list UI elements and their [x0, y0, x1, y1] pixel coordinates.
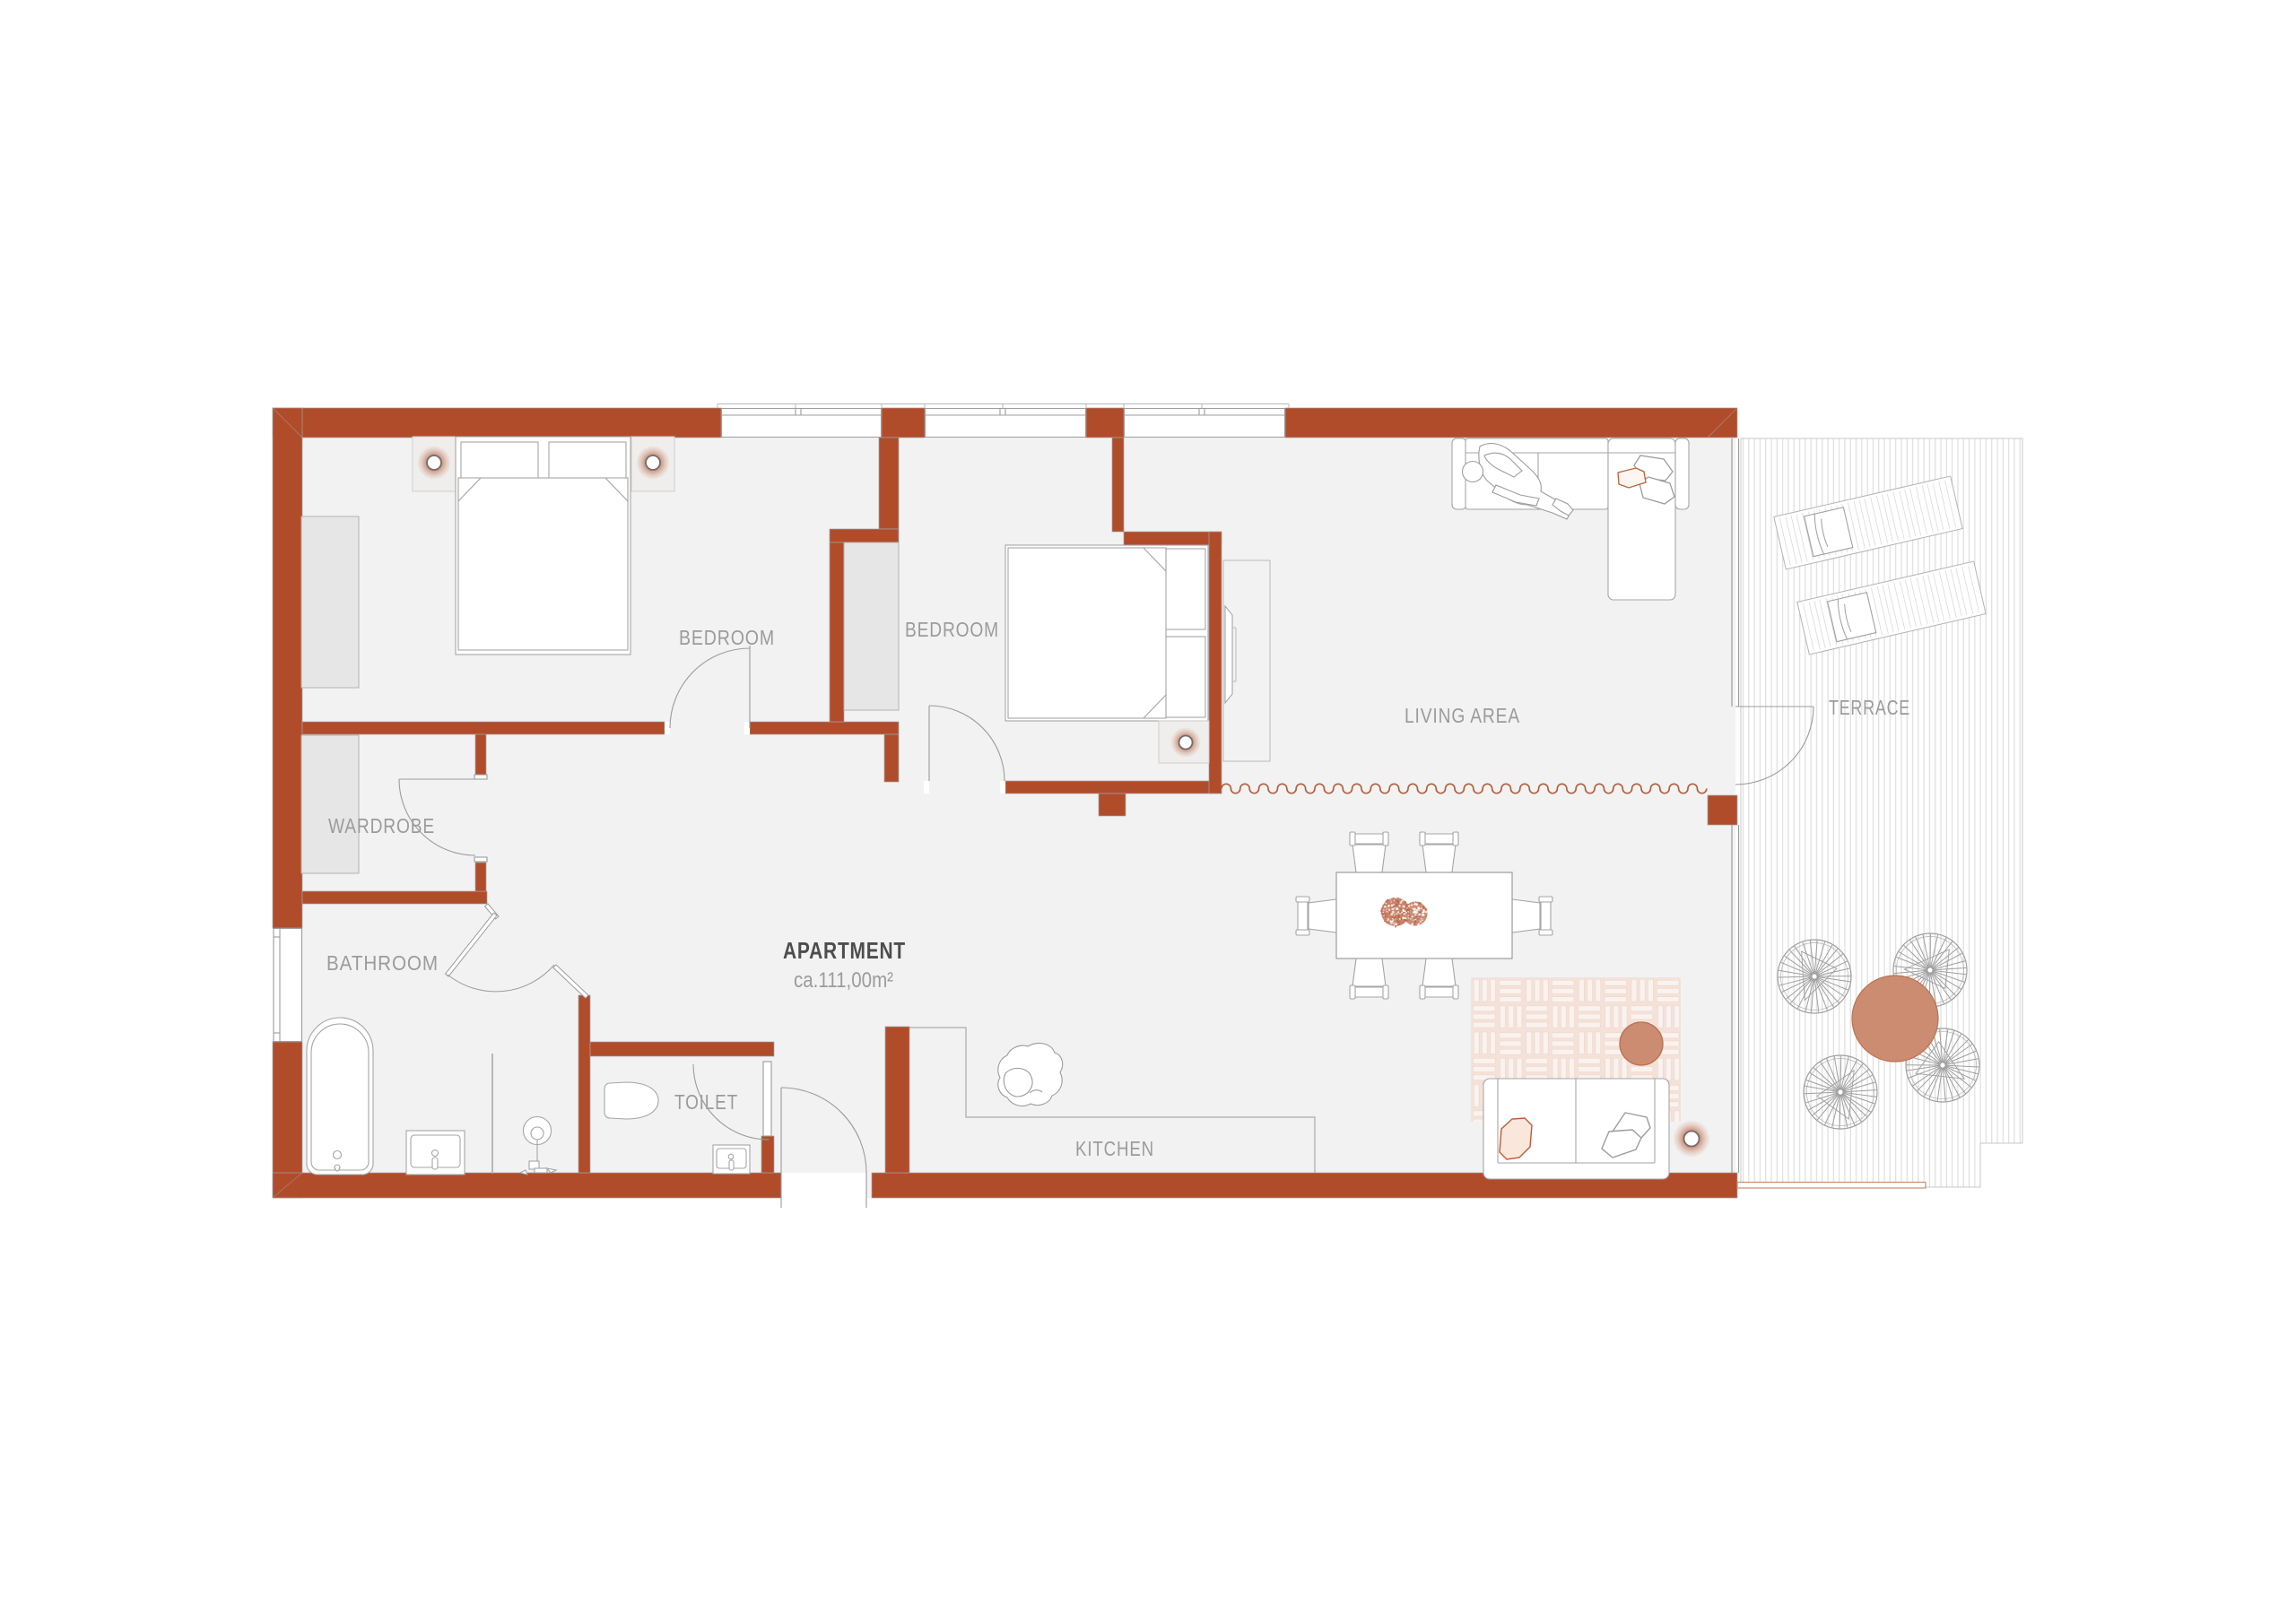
svg-text:ca.111,00m²: ca.111,00m² — [794, 968, 893, 993]
svg-text:BATHROOM: BATHROOM — [326, 951, 439, 975]
svg-text:LIVING AREA: LIVING AREA — [1405, 704, 1520, 727]
svg-text:TERRACE: TERRACE — [1829, 696, 1910, 719]
svg-text:KITCHEN: KITCHEN — [1075, 1137, 1154, 1160]
svg-text:APARTMENT: APARTMENT — [783, 937, 906, 964]
svg-text:WARDROBE: WARDROBE — [328, 814, 435, 837]
svg-text:TOILET: TOILET — [674, 1090, 738, 1114]
svg-text:BEDROOM: BEDROOM — [905, 618, 999, 641]
svg-text:BEDROOM: BEDROOM — [679, 626, 775, 649]
